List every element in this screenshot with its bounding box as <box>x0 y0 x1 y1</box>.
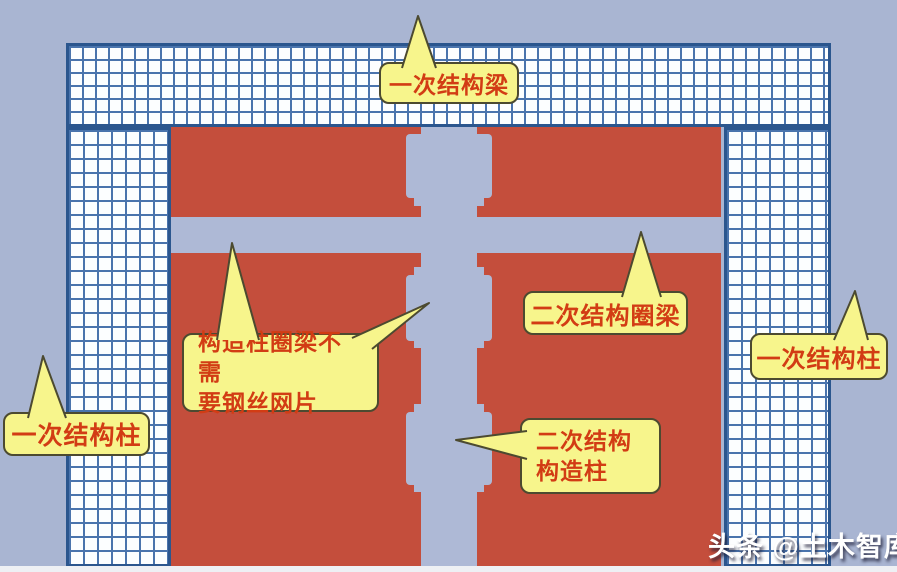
column-segment <box>421 490 477 567</box>
column-segment <box>406 134 492 198</box>
column-segment <box>406 275 492 341</box>
callout-mesh-note-line2: 要钢丝网片 <box>198 388 318 418</box>
callout-primary-column-right: 一次结构柱 <box>750 333 888 380</box>
callout-secondary-column-line1: 二次结构 <box>536 426 632 456</box>
bottom-edge <box>0 566 897 572</box>
column-segment <box>421 346 477 407</box>
watermark: 头条 @土木智库 <box>708 525 897 564</box>
callout-primary-column-right-label: 一次结构柱 <box>757 339 882 374</box>
callout-secondary-column: 二次结构 构造柱 <box>520 418 661 494</box>
column-segment <box>406 412 492 485</box>
callout-primary-column-left: 一次结构柱 <box>3 412 150 456</box>
primary-column-left-mesh <box>66 127 171 567</box>
column-segment <box>421 204 477 270</box>
callout-mesh-note-line1: 构造柱圈梁不需 <box>198 327 363 388</box>
callout-secondary-ring-beam: 二次结构圈梁 <box>523 291 688 335</box>
callout-primary-beam: 一次结构梁 <box>379 62 519 104</box>
callout-secondary-column-line2: 构造柱 <box>536 456 608 486</box>
callout-primary-column-left-label: 一次结构柱 <box>11 416 141 452</box>
callout-mesh-note: 构造柱圈梁不需 要钢丝网片 <box>182 333 379 412</box>
secondary-constructional-column <box>406 127 492 567</box>
callout-primary-beam-label: 一次结构梁 <box>389 66 509 100</box>
diagram-canvas: 一次结构梁 一次结构柱 一次结构柱 二次结构圈梁 构造柱圈梁不需 要钢丝网片 二… <box>0 0 897 572</box>
callout-secondary-ring-beam-label: 二次结构圈梁 <box>531 296 681 331</box>
pointer-primary-column-left <box>28 356 66 418</box>
